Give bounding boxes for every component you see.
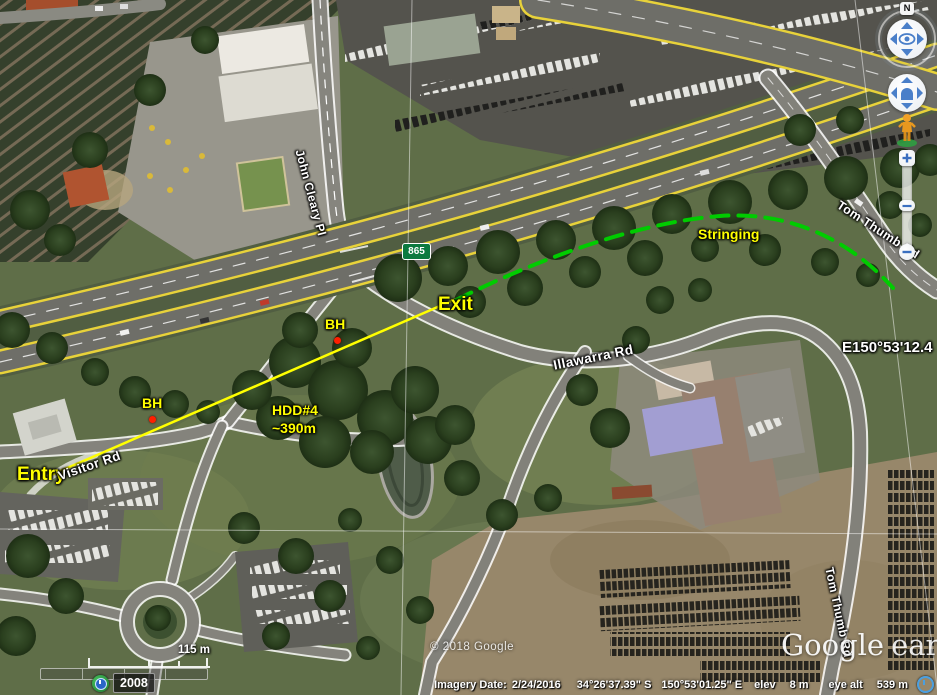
eye-altitude-value: 539 m: [877, 679, 908, 691]
latitude-readout: 34°26'37.39" S: [577, 679, 652, 691]
streaming-indicator-icon: [917, 676, 934, 693]
time-slider-year[interactable]: 2008: [113, 673, 155, 693]
move-joystick-icon: [888, 74, 926, 112]
exit-label: Exit: [438, 294, 473, 316]
borehole1-marker: [334, 337, 341, 344]
status-bar: Imagery Date: 2/24/2016 34°26'37.39" S 1…: [434, 676, 934, 693]
time-slider-clock-icon[interactable]: [92, 675, 109, 692]
eye-altitude-label: eye alt: [829, 679, 863, 691]
borehole2-label: BH: [142, 395, 162, 411]
imagery-date-label: Imagery Date:: [434, 679, 507, 691]
borehole2-marker: [149, 416, 156, 423]
navigation-controls: N: [867, 0, 937, 270]
google-earth-viewport: Entry Exit BH BH HDD#4 ~390m Stringing E…: [0, 0, 937, 695]
copyright-text: © 2018 Google: [430, 641, 514, 653]
pegman-icon: [895, 112, 919, 148]
google-earth-logo: Google earth: [781, 628, 937, 662]
zoom-slider-handle[interactable]: [899, 200, 915, 211]
route-865-shield: 865: [402, 243, 431, 260]
scale-bar: [88, 658, 210, 668]
logo-earth: earth: [891, 628, 937, 662]
industrial-buildings: [213, 24, 318, 122]
pegman[interactable]: [895, 112, 919, 148]
plus-icon: [901, 152, 913, 164]
elevation-value: 8 m: [790, 679, 809, 691]
longitude-readout: 150°53'01.25" E: [661, 679, 742, 691]
look-joystick[interactable]: [887, 19, 927, 59]
graticule-longitude-label: E150°53'12.4: [842, 339, 932, 356]
satellite-canvas[interactable]: [0, 0, 937, 695]
stringing-label: Stringing: [698, 226, 759, 242]
imagery-date-value: 2/24/2016: [512, 679, 561, 691]
elevation-label: elev: [754, 679, 775, 691]
borehole1-label: BH: [325, 316, 345, 332]
route-865-number: 865: [408, 246, 425, 257]
zoom-in-button[interactable]: [899, 150, 915, 166]
handle-minus-icon: [901, 203, 913, 209]
minus-icon: [901, 249, 913, 255]
hdd-label: HDD#4 ~390m: [272, 401, 318, 437]
scale-legend: 115 m: [88, 644, 210, 668]
logo-google: Google: [781, 628, 884, 662]
hdd-length: ~390m: [272, 419, 318, 437]
hand-icon: [901, 88, 913, 100]
north-indicator[interactable]: N: [900, 2, 914, 15]
zoom-out-button[interactable]: [899, 244, 915, 260]
scale-label: 115 m: [88, 644, 210, 656]
hdd-name: HDD#4: [272, 401, 318, 419]
move-joystick[interactable]: [888, 74, 926, 112]
look-joystick-icon: [887, 19, 927, 59]
